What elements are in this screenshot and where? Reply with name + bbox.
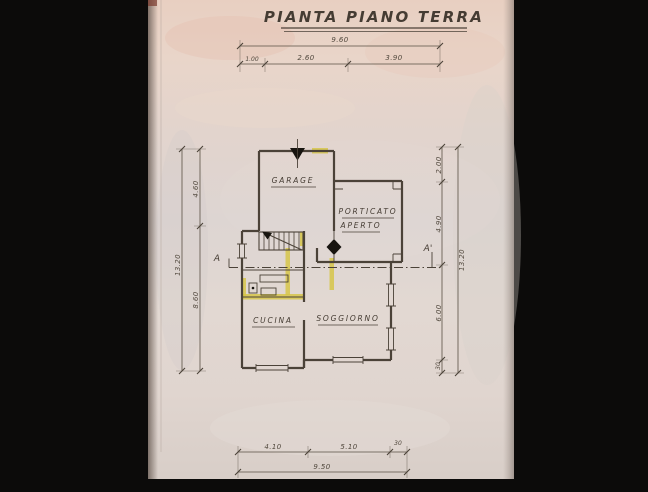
floor-plan-svg: PIANTA PIANO TERRA	[0, 0, 648, 492]
cucina-label: CUCINA	[253, 316, 293, 325]
title-block: PIANTA PIANO TERRA	[264, 8, 484, 32]
soggiorno-label: SOGGIORNO	[316, 314, 379, 323]
dim-top-seg1: 1.00	[245, 56, 259, 63]
page-title: PIANTA PIANO TERRA	[264, 8, 484, 26]
garage-label: GARAGE	[272, 176, 315, 185]
dim-right-seg1: 2.00	[435, 156, 443, 173]
paper-sheet	[148, 0, 521, 479]
dim-top-seg3: 3.90	[385, 54, 402, 62]
section-marker-a-prime: A'	[423, 244, 433, 254]
dim-right-total: 13.20	[458, 249, 466, 271]
paper-corner-mark	[148, 0, 157, 6]
dim-left-seg1: 4.60	[192, 180, 200, 197]
dim-bottom-seg1: 4.10	[264, 443, 281, 451]
scanned-floor-plan-page: PIANTA PIANO TERRA	[0, 0, 648, 492]
dim-right-seg2: 4.90	[435, 215, 443, 232]
dim-top-total: 9.60	[331, 36, 348, 44]
dim-right-seg3: 6.00	[435, 304, 443, 321]
dim-bottom-total: 9.50	[313, 463, 330, 471]
dim-bottom-seg3: 30	[394, 440, 402, 447]
porticato-label-line1: PORTICATO	[339, 207, 398, 216]
dim-bottom-seg2: 5.10	[340, 443, 357, 451]
porticato-label-line2: APERTO	[340, 221, 382, 230]
dim-right-seg4: 30	[435, 362, 442, 370]
section-marker-a: A	[213, 254, 220, 264]
dim-left-seg2: 8.60	[192, 291, 200, 308]
dim-left-total: 13.20	[174, 254, 182, 276]
dim-top-seg2: 2.60	[297, 54, 314, 62]
